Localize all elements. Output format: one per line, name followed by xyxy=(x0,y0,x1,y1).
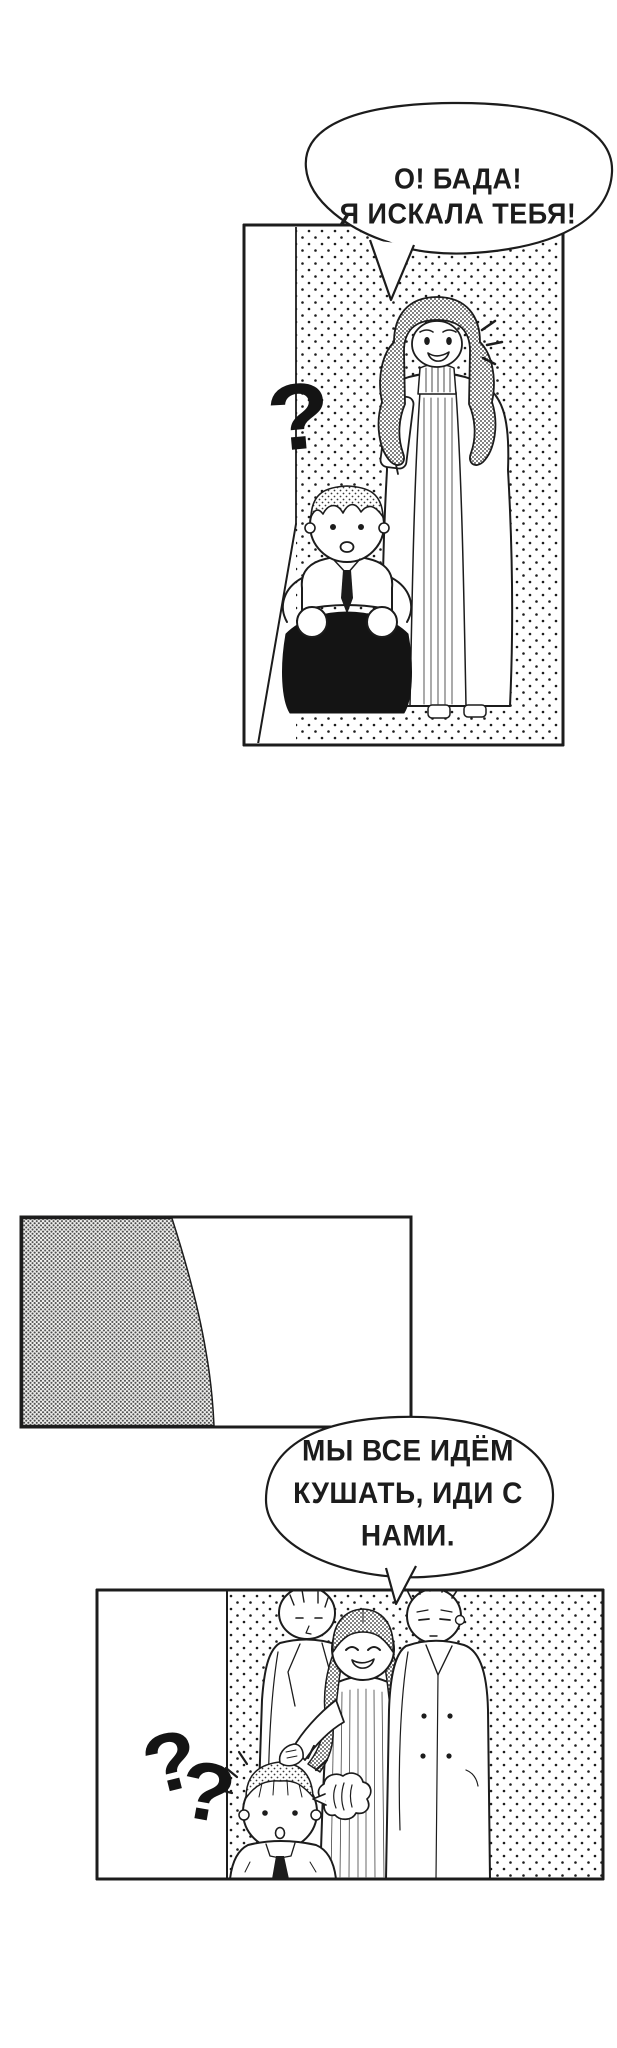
speech-line: Я ИСКАЛА ТЕБЯ! xyxy=(312,197,604,232)
comic-artwork xyxy=(0,0,617,2048)
speech-bubble-1-text: О! БАДА! Я ИСКАЛА ТЕБЯ! xyxy=(312,162,604,232)
webtoon-page: О! БАДА! Я ИСКАЛА ТЕБЯ! МЫ ВСЕ ИДЁМ КУША… xyxy=(0,0,617,2048)
panel-1 xyxy=(244,225,563,745)
speech-line: НАМИ. xyxy=(282,1515,534,1557)
speech-line: КУШАТЬ, ИДИ С xyxy=(282,1472,534,1514)
speech-line: О! БАДА! xyxy=(312,162,604,197)
speech-line: МЫ ВСЕ ИДЁМ xyxy=(282,1430,534,1472)
speech-bubble-2-text: МЫ ВСЕ ИДЁМ КУШАТЬ, ИДИ С НАМИ. xyxy=(282,1430,534,1557)
question-mark-panel1: ? xyxy=(263,367,334,466)
panel-2 xyxy=(21,1217,411,1427)
